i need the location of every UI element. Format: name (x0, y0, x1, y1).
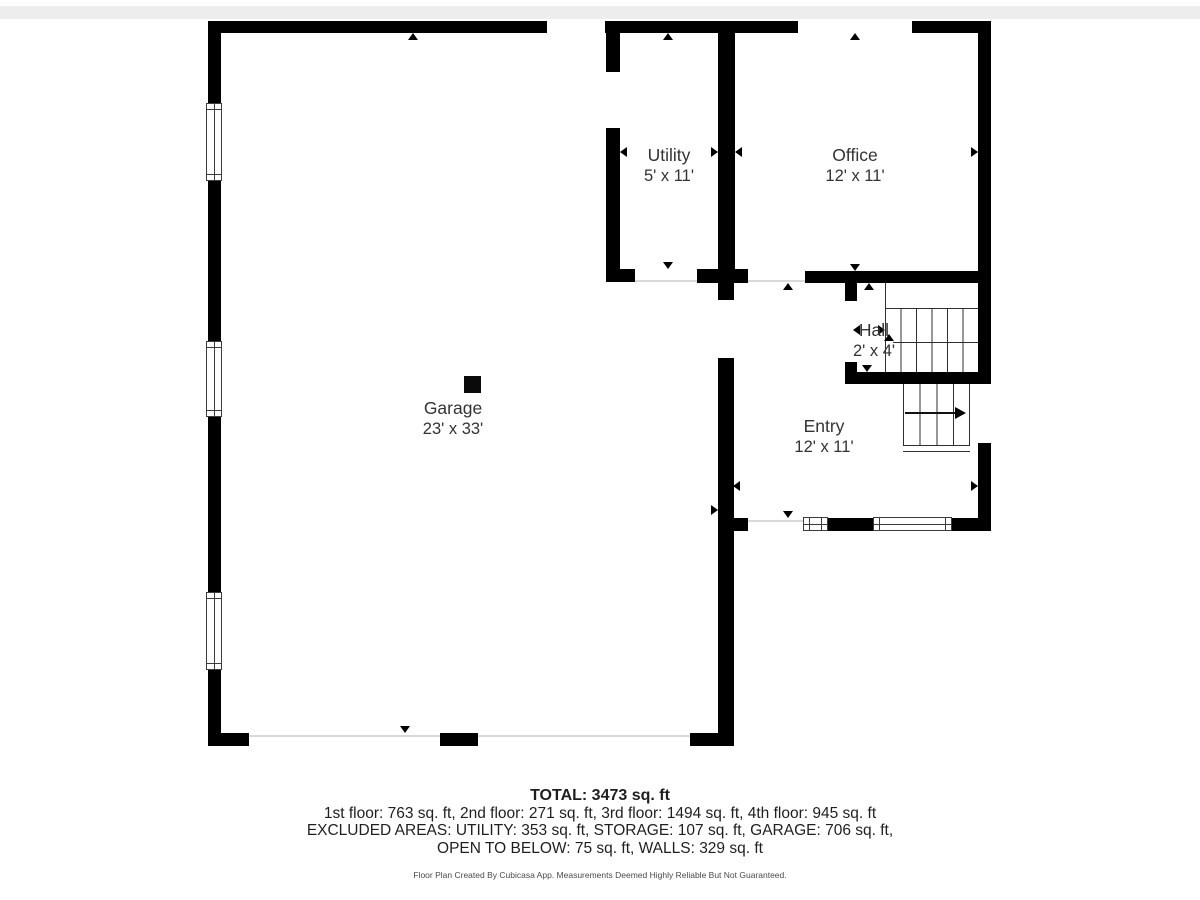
window-left-3 (206, 592, 222, 670)
wall-entry-bottom-mid (828, 518, 873, 531)
measure-marker-down-icon (862, 365, 872, 372)
stairs-lower-end-cap (903, 445, 970, 452)
window-entry-1 (803, 517, 828, 531)
measure-marker-up-icon (663, 33, 673, 40)
area-summary: TOTAL: 3473 sq. ft 1st floor: 763 sq. ft… (0, 786, 1200, 880)
wall-garage-entry-divider-stub (718, 283, 734, 300)
total-area-text: TOTAL: 3473 sq. ft (0, 786, 1200, 805)
measure-marker-right-icon (711, 505, 718, 515)
room-label-garage: Garage 23' x 33' (373, 398, 533, 440)
measure-marker-up-icon (864, 283, 874, 290)
excluded-areas-text-2: OPEN TO BELOW: 75 sq. ft, WALLS: 329 sq.… (0, 840, 1200, 857)
room-name: Office (775, 145, 935, 166)
window-entry-2 (873, 517, 952, 531)
wall-cross-junction (697, 269, 748, 283)
wall-garage-bottom-mid (440, 733, 478, 746)
measure-marker-right-icon (971, 147, 978, 157)
wall-entry-bottom-right (952, 518, 991, 531)
measure-marker-left-icon (733, 481, 740, 491)
wall-hall-left-stub-top (845, 283, 857, 301)
room-name: Entry (744, 416, 904, 437)
wall-left-2 (208, 181, 221, 341)
measure-marker-down-icon (783, 511, 793, 518)
measure-marker-up-icon (408, 33, 418, 40)
room-label-hall: Hall 2' x 4' (794, 320, 954, 362)
wall-office-bottom-hall-top (805, 271, 991, 283)
measure-marker-up-icon (850, 33, 860, 40)
room-dims: 12' x 11' (744, 437, 904, 458)
wall-right-upper (978, 21, 991, 383)
wall-garage-bottom-left (208, 733, 249, 746)
measure-marker-right-icon (971, 481, 978, 491)
entry-door-opening (748, 520, 803, 522)
floor-plan-canvas: Utility 5' x 11' Office 12' x 11' Garage… (0, 0, 1200, 900)
wall-left-1 (208, 21, 221, 103)
wall-garage-top (208, 21, 547, 33)
window-left-2 (206, 341, 222, 417)
disclaimer-text: Floor Plan Created By Cubicasa App. Meas… (0, 870, 1200, 880)
wall-utility-bottom-foot (606, 269, 635, 282)
room-dims: 2' x 4' (794, 341, 954, 362)
room-label-office: Office 12' x 11' (775, 145, 935, 187)
top-edge-band (0, 6, 1200, 19)
hall-door-opening (748, 280, 805, 282)
room-name: Garage (373, 398, 533, 419)
wall-utility-office-top (605, 21, 798, 33)
wall-utility-left-upper (606, 21, 620, 72)
garage-fixture-icon (464, 376, 481, 393)
room-dims: 12' x 11' (775, 166, 935, 187)
room-dims: 5' x 11' (589, 166, 749, 187)
measure-marker-down-icon (663, 262, 673, 269)
window-left-1 (206, 103, 222, 181)
room-name: Hall (794, 320, 954, 341)
measure-marker-down-icon (400, 726, 410, 733)
room-dims: 23' x 33' (373, 419, 533, 440)
wall-entry-bottom-stub (733, 518, 748, 531)
excluded-areas-text-1: EXCLUDED AREAS: UTILITY: 353 sq. ft, STO… (0, 822, 1200, 839)
garage-door-opening-2 (478, 735, 690, 737)
wall-hall-bottom (845, 372, 991, 384)
stairs-right-arrow-icon (955, 407, 966, 419)
utility-door-opening (635, 280, 697, 282)
wall-garage-entry-divider (718, 358, 734, 746)
garage-door-opening-1 (249, 735, 440, 737)
room-name: Utility (589, 145, 749, 166)
measure-marker-down-icon (850, 264, 860, 271)
floors-area-text: 1st floor: 763 sq. ft, 2nd floor: 271 sq… (0, 805, 1200, 822)
room-label-utility: Utility 5' x 11' (589, 145, 749, 187)
measure-marker-right-icon (214, 503, 221, 513)
room-label-entry: Entry 12' x 11' (744, 416, 904, 458)
measure-marker-up-icon (783, 283, 793, 290)
stairs-lower-direction-line (905, 412, 957, 414)
